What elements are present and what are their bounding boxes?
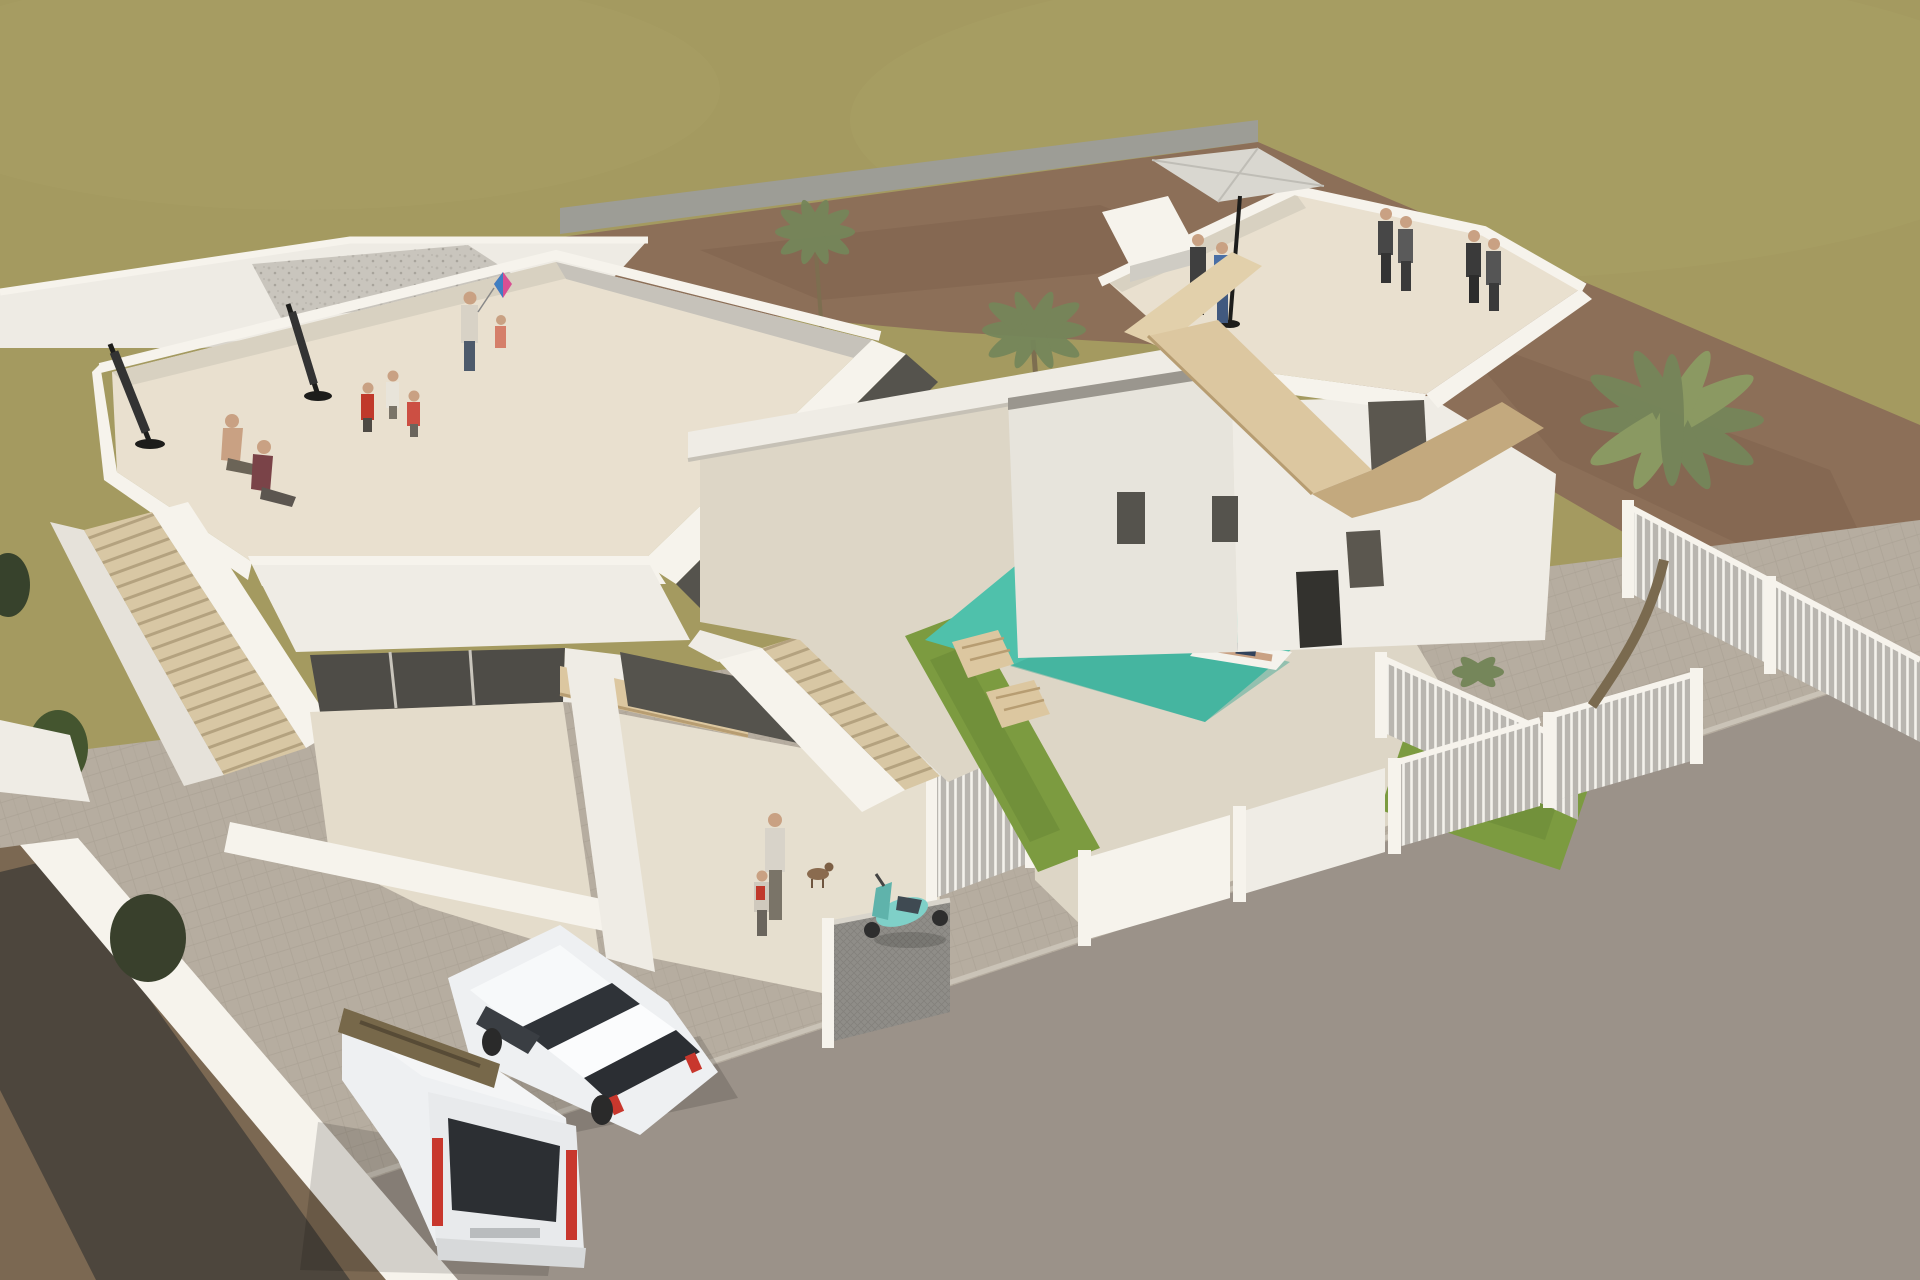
scene-canvas bbox=[0, 0, 1920, 1280]
dark-bush bbox=[110, 894, 186, 982]
red-backpack bbox=[756, 886, 765, 900]
car-wheel bbox=[482, 1028, 502, 1056]
fence-post bbox=[1622, 500, 1634, 598]
ground-glass-doors bbox=[310, 648, 565, 712]
fence-post bbox=[1764, 576, 1776, 674]
window-opening bbox=[1117, 492, 1145, 544]
scooter-wheel bbox=[864, 922, 880, 938]
door-opening bbox=[1296, 570, 1342, 648]
scooter-wheel bbox=[932, 910, 948, 926]
scooter-shadow bbox=[874, 932, 946, 948]
fence-post bbox=[822, 918, 834, 1048]
van-taillight bbox=[566, 1150, 577, 1240]
fence-post bbox=[1078, 850, 1091, 946]
van-plate-recess bbox=[470, 1228, 540, 1238]
lower-facade-band bbox=[252, 565, 690, 652]
toddler bbox=[496, 315, 506, 325]
toddler-body bbox=[495, 326, 506, 348]
window-opening bbox=[1212, 496, 1238, 542]
car-wheel bbox=[591, 1095, 613, 1125]
van-taillight bbox=[432, 1138, 443, 1226]
fence-post bbox=[1690, 668, 1703, 764]
fence-post bbox=[1388, 758, 1401, 854]
fence-post bbox=[1543, 712, 1556, 808]
window-opening bbox=[1346, 530, 1384, 588]
render-viewport bbox=[0, 0, 1920, 1280]
fence-post bbox=[1375, 652, 1387, 738]
fence-post bbox=[1233, 806, 1246, 902]
